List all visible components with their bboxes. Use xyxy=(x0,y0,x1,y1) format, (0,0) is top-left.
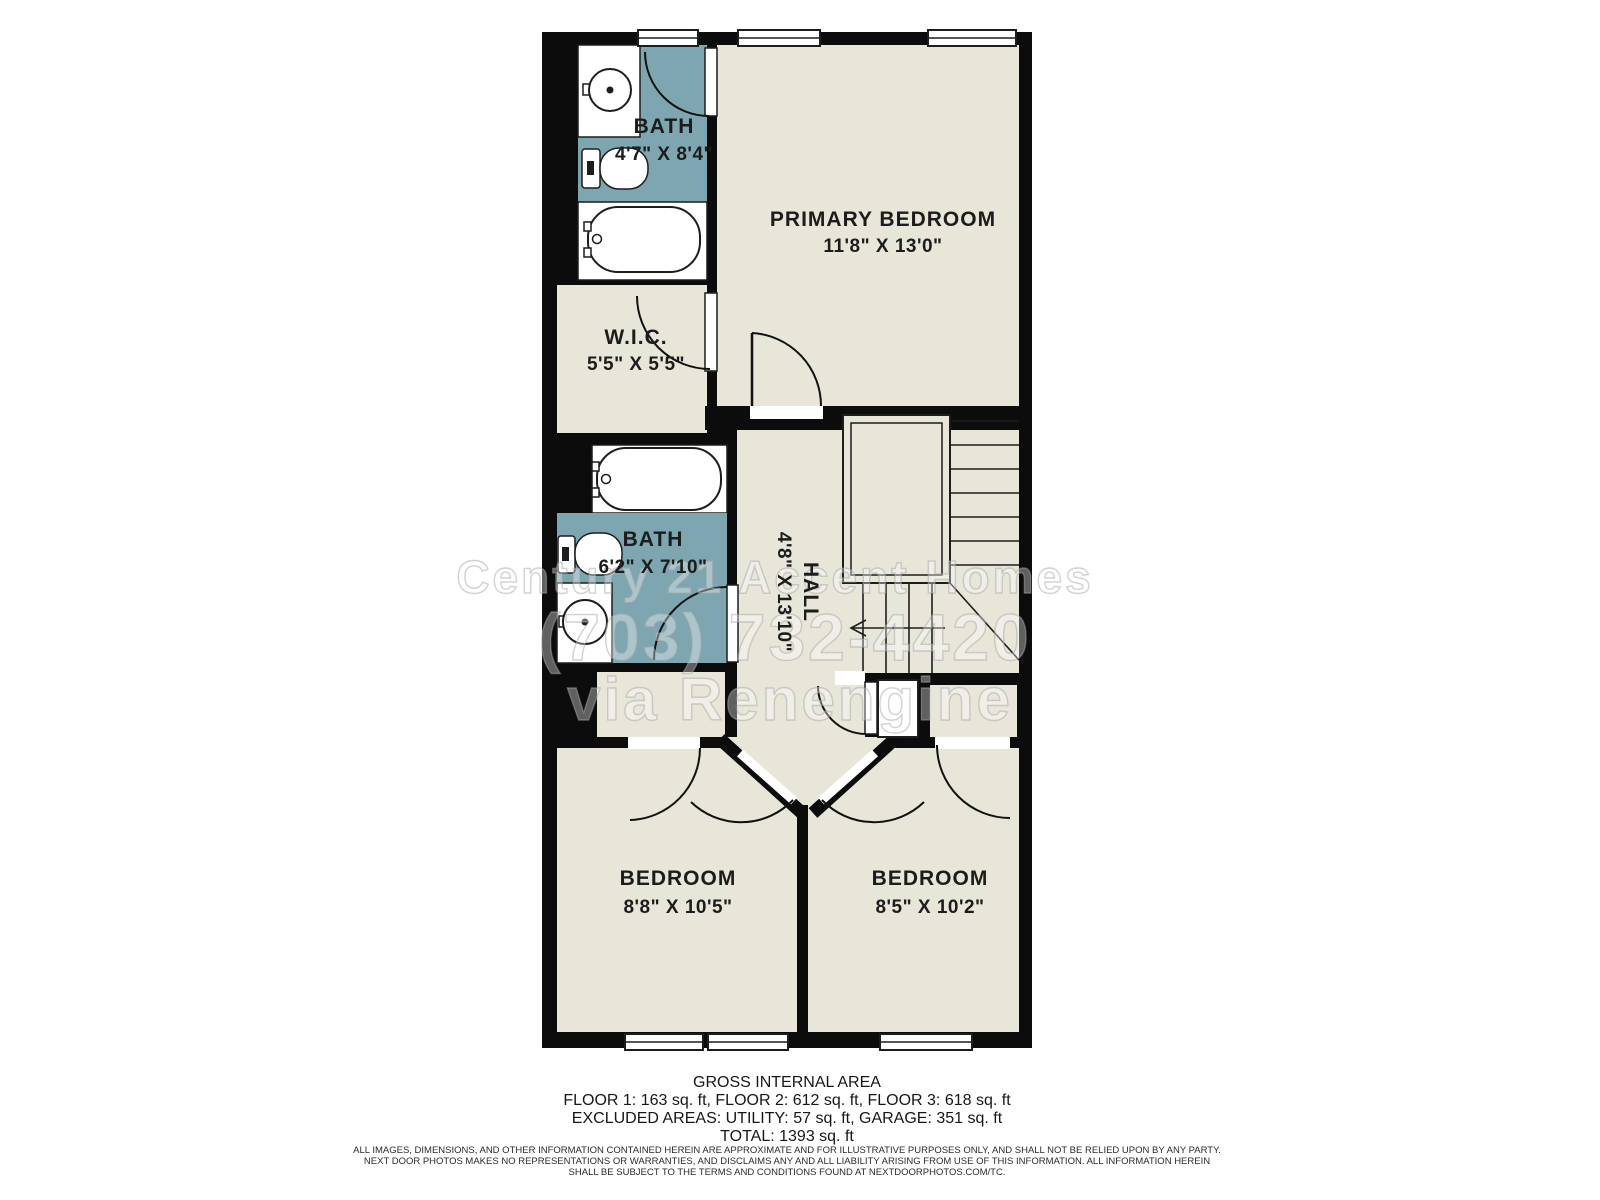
bedroom-divider-wall xyxy=(797,805,808,1035)
primary-bedroom-door-opening xyxy=(750,406,823,419)
bedroom-left-label: BEDROOM xyxy=(620,867,737,890)
bath-top-label: BATH xyxy=(634,115,695,138)
bedroom-left-floor xyxy=(557,748,797,1032)
hall-label: HALL xyxy=(799,562,822,622)
wic-dims: 5'5" X 5'5" xyxy=(587,354,685,375)
window-top-3 xyxy=(928,30,1016,46)
bath-mid-label: BATH xyxy=(623,528,684,551)
floor-plan-drawing: Century 21 Accent Homes (703) 732-4420 v… xyxy=(0,0,1600,1200)
bath-top-dims: 4'7" X 8'4" xyxy=(615,144,713,165)
bathtub-top xyxy=(584,207,700,272)
floor-plan-page: Century 21 Accent Homes (703) 732-4420 v… xyxy=(0,0,1600,1200)
disclaimer-line-2: NEXT DOOR PHOTOS MAKES NO REPRESENTATION… xyxy=(0,1157,1574,1168)
bedroom-left-dims: 8'8" X 10'5" xyxy=(623,897,732,918)
window-bottom-3 xyxy=(880,1034,972,1050)
bedroom-right-dims: 8'5" X 10'2" xyxy=(875,897,984,918)
area-summary-floors: FLOOR 1: 163 sq. ft, FLOOR 2: 612 sq. ft… xyxy=(0,1092,1574,1110)
wic-label: W.I.C. xyxy=(604,326,667,349)
window-top-1 xyxy=(638,30,698,46)
window-top-2 xyxy=(738,30,820,46)
watermark-line-3: via Renengine xyxy=(567,666,1013,733)
closet-left-opening xyxy=(628,737,700,749)
window-bottom-2 xyxy=(708,1034,788,1050)
bath-top-door-leaf xyxy=(705,48,717,116)
area-summary-excluded: EXCLUDED AREAS: UTILITY: 57 sq. ft, GARA… xyxy=(0,1110,1574,1128)
bedroom-right-top-opening xyxy=(935,737,1010,749)
bath-mid-dims: 6'2" X 7'10" xyxy=(598,557,707,578)
bedroom-right-label: BEDROOM xyxy=(872,867,989,890)
area-summary-total: TOTAL: 1393 sq. ft xyxy=(0,1128,1574,1146)
disclaimer: ALL IMAGES, DIMENSIONS, AND OTHER INFORM… xyxy=(0,1146,1574,1178)
wic-door-leaf xyxy=(705,293,717,371)
primary-bedroom-label: PRIMARY BEDROOM xyxy=(770,208,996,231)
hall-dims: 4'8" X 13'10" xyxy=(773,532,794,652)
disclaimer-line-3: SHALL BE SUBJECT TO THE TERMS AND CONDIT… xyxy=(0,1168,1574,1179)
area-summary: GROSS INTERNAL AREA FLOOR 1: 163 sq. ft,… xyxy=(0,1074,1574,1146)
primary-bedroom-dims: 11'8" X 13'0" xyxy=(823,236,942,257)
window-bottom-1 xyxy=(625,1034,703,1050)
bathtub-mid xyxy=(592,448,721,510)
area-summary-title: GROSS INTERNAL AREA xyxy=(0,1074,1574,1092)
